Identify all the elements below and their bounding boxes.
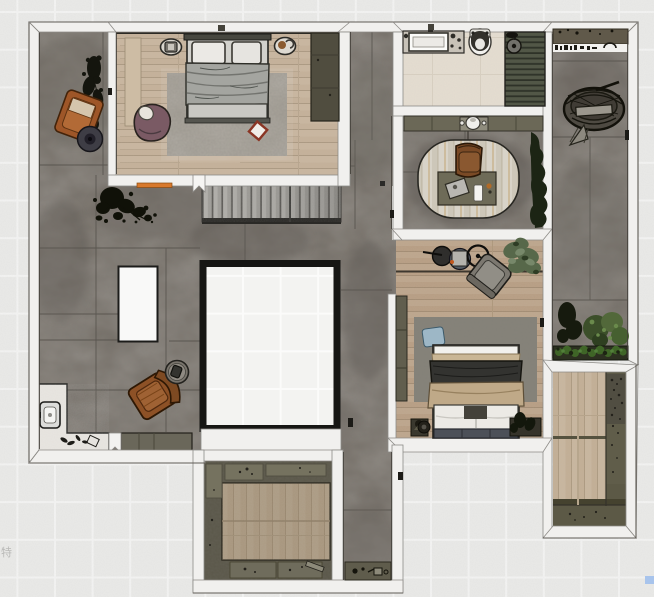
svg-text:特: 特 <box>1 545 12 559</box>
